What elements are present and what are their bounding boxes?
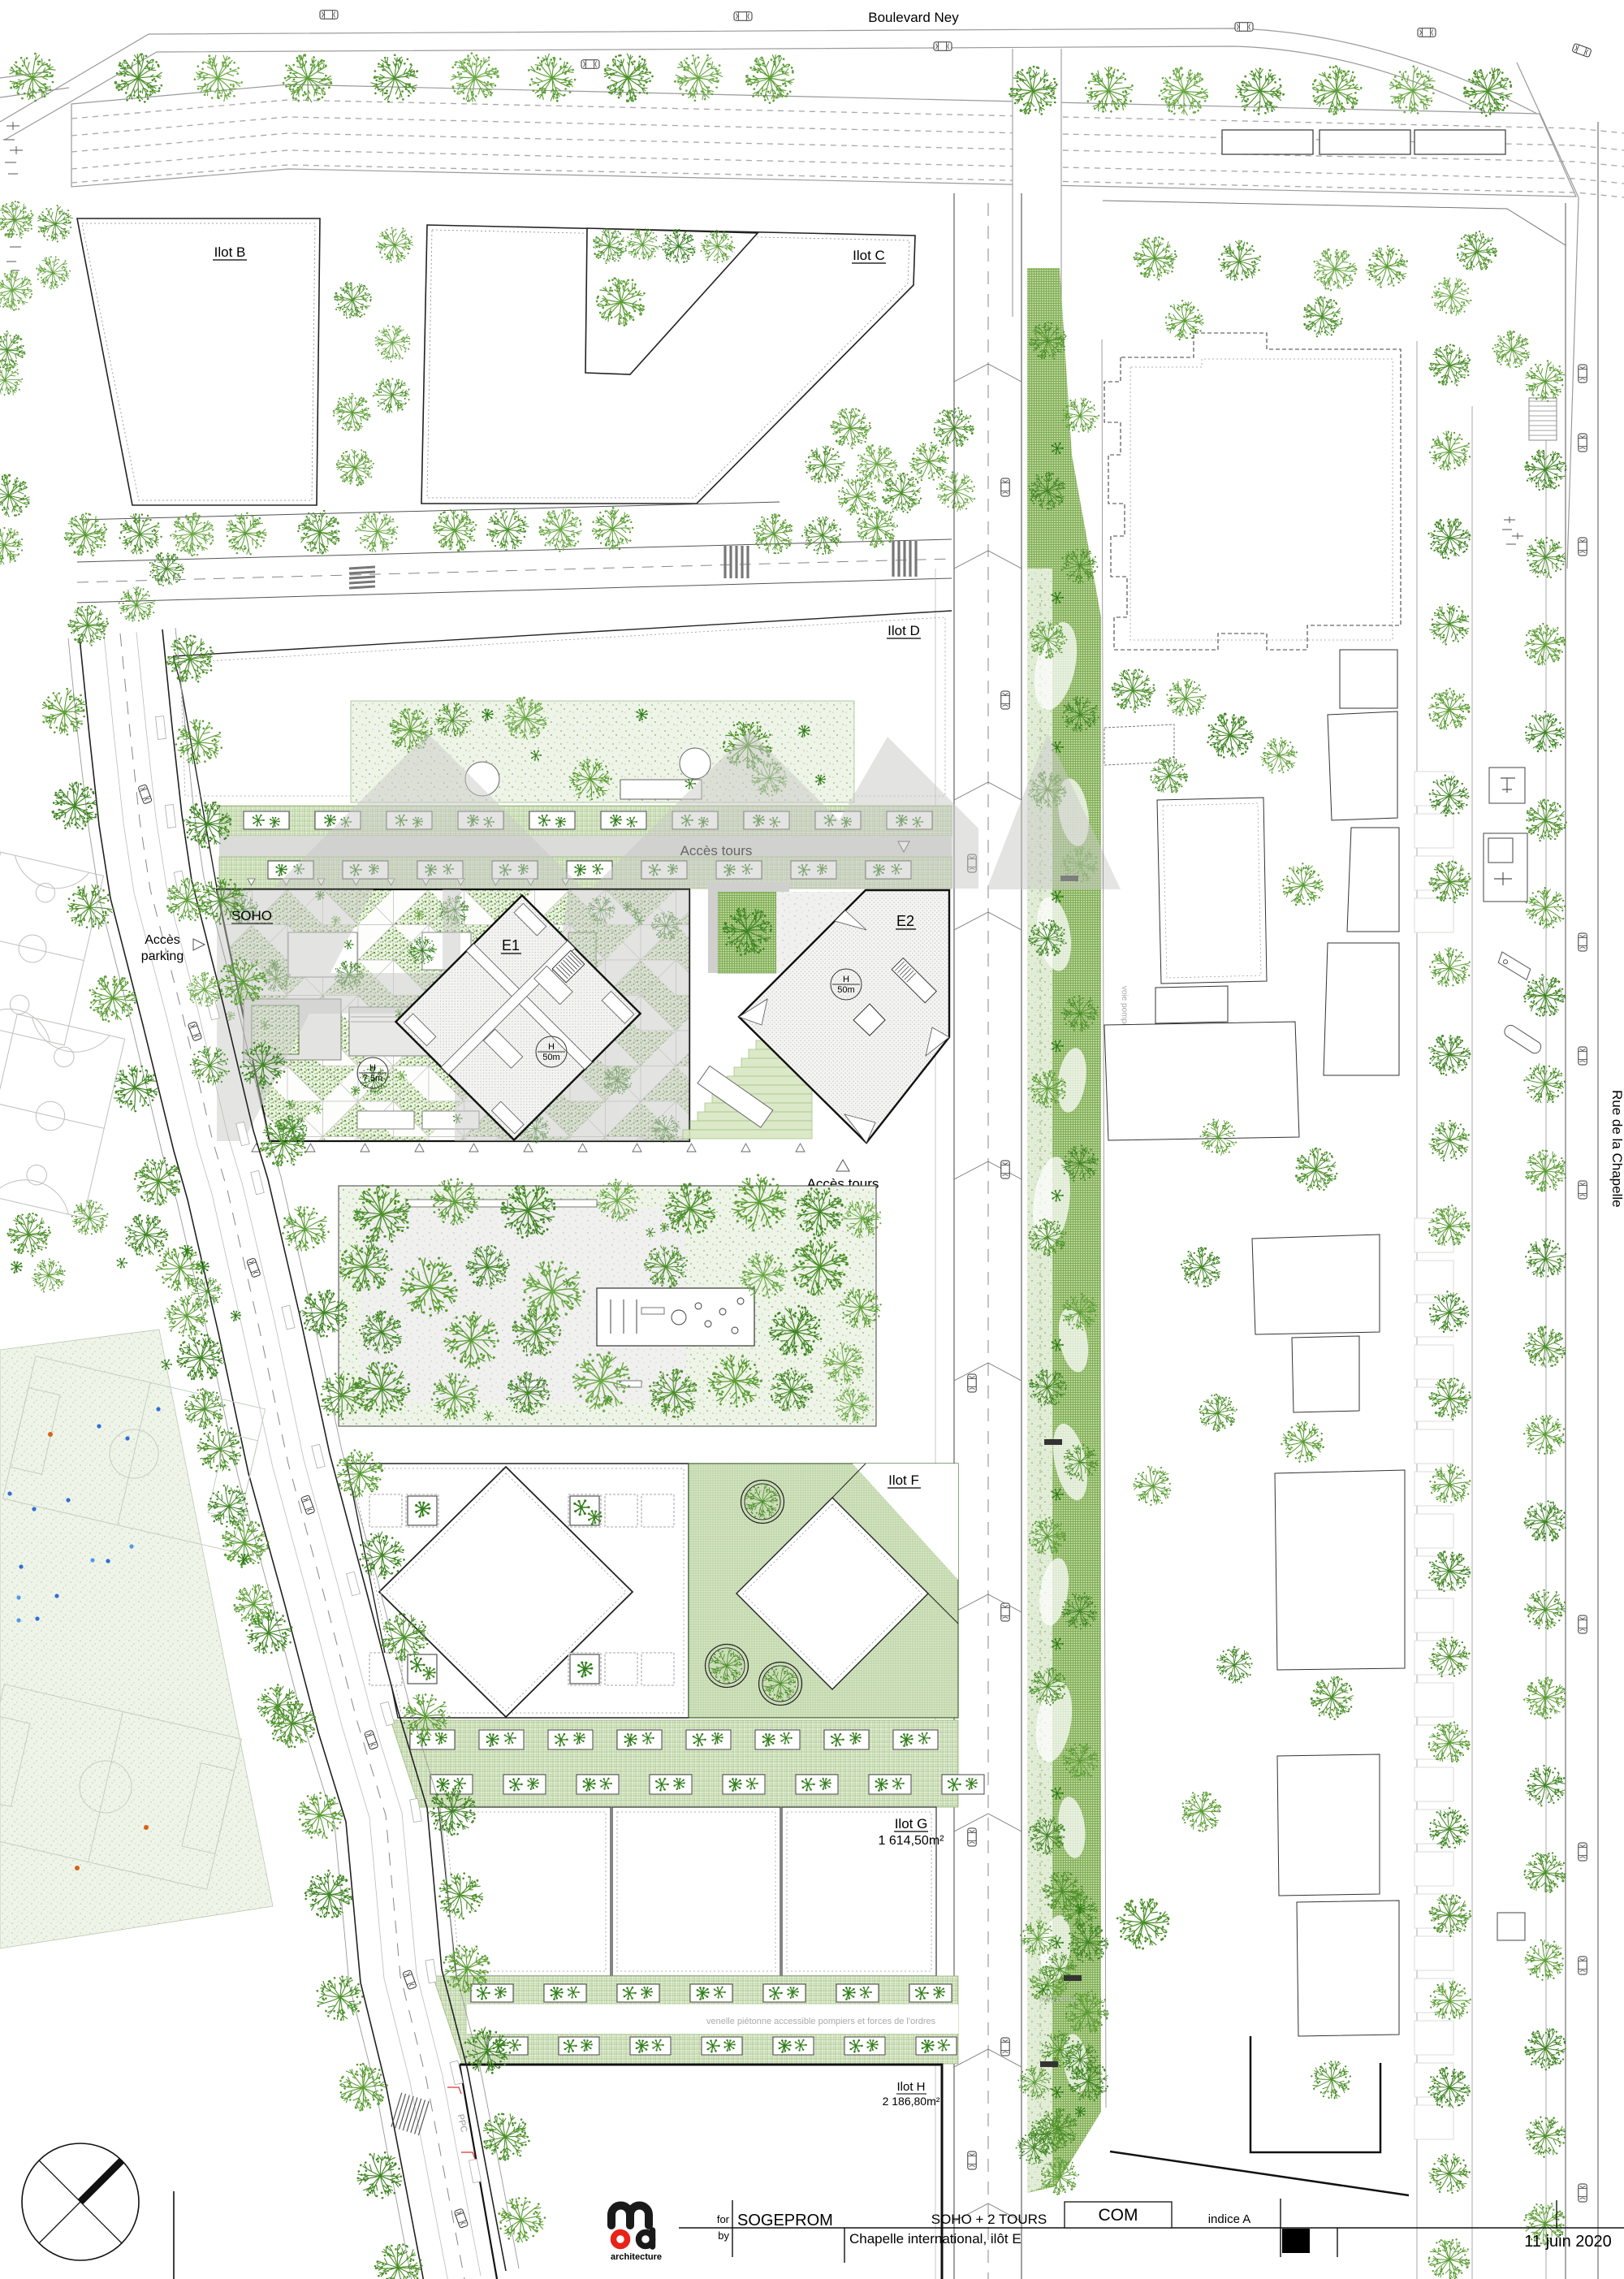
svg-text:parking: parking [141,949,184,963]
svg-text:H: H [369,1063,376,1073]
svg-text:architecture: architecture [611,2252,662,2262]
svg-text:H: H [548,1042,555,1052]
svg-text:indice A: indice A [1208,2212,1251,2226]
svg-text:H: H [843,975,849,984]
svg-text:11 juin 2020: 11 juin 2020 [1524,2233,1612,2251]
svg-text:ping pong: ping pong [1039,1995,1075,2004]
svg-text:50m: 50m [542,1053,559,1062]
svg-text:Rue de la Chapelle: Rue de la Chapelle [1609,1090,1624,1208]
svg-text:Accès: Accès [145,933,180,947]
svg-text:Ilot D: Ilot D [888,623,920,638]
svg-text:Ilot F: Ilot F [888,1472,919,1488]
svg-text:SOGEPROM: SOGEPROM [737,2212,833,2229]
svg-text:Ilot H: Ilot H [896,2080,925,2094]
svg-text:1 614,50m²: 1 614,50m² [879,1834,945,1848]
svg-text:COM: COM [1099,2206,1138,2225]
svg-text:50m: 50m [837,985,854,995]
svg-text:E2: E2 [896,913,914,929]
svg-text:for: for [717,2213,730,2225]
svg-text:by: by [718,2229,729,2242]
svg-text:7,5m: 7,5m [363,1074,382,1083]
svg-text:Chapelle international, ilôt E: Chapelle international, ilôt E [849,2231,1021,2247]
svg-text:Ilot G: Ilot G [895,1816,928,1831]
svg-text:venelle piétonne accessible po: venelle piétonne accessible pompiers et … [706,2017,936,2026]
svg-text:E1: E1 [502,937,520,954]
svg-text:Boulevard Ney: Boulevard Ney [868,10,959,25]
svg-text:Ilot B: Ilot B [214,244,246,260]
svg-text:Ilot C: Ilot C [853,248,885,263]
svg-text:SOHO + 2 TOURS: SOHO + 2 TOURS [931,2212,1047,2227]
svg-text:2 186,80m²: 2 186,80m² [883,2095,940,2108]
